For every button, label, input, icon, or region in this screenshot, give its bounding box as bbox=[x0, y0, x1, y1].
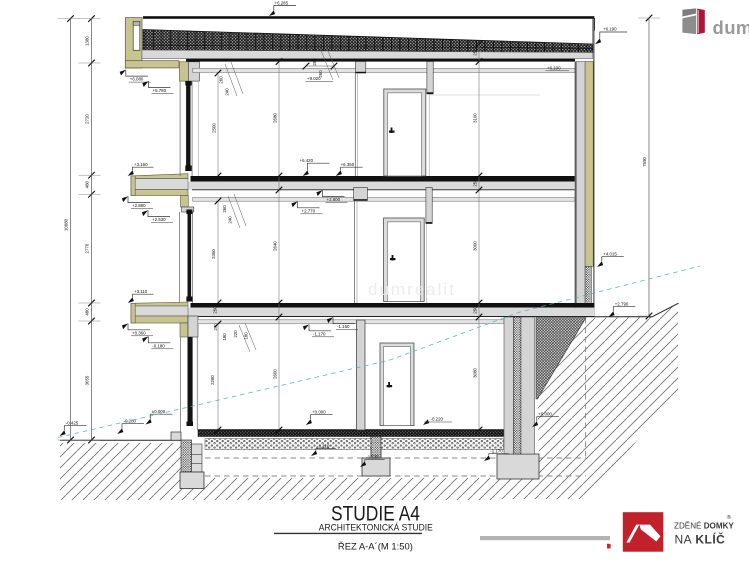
svg-text:250: 250 bbox=[472, 306, 477, 314]
svg-text:480: 480 bbox=[84, 180, 89, 188]
svg-text:2680: 2680 bbox=[272, 113, 277, 123]
svg-text:+6.100: +6.100 bbox=[547, 66, 561, 71]
svg-text:ARCHITEKTONICKÁ STUDIE: ARCHITEKTONICKÁ STUDIE bbox=[319, 523, 433, 533]
svg-text:±0.000: ±0.000 bbox=[152, 409, 166, 414]
svg-text:2500: 2500 bbox=[211, 123, 216, 133]
svg-text:180: 180 bbox=[222, 333, 227, 341]
svg-text:+0.000: +0.000 bbox=[312, 409, 326, 414]
svg-text:2640: 2640 bbox=[272, 241, 277, 251]
svg-text:-0.180: -0.180 bbox=[152, 343, 165, 348]
svg-text:+9.020: +9.020 bbox=[307, 76, 321, 81]
svg-text:+0.000: +0.000 bbox=[538, 411, 552, 416]
svg-text:+2.790: +2.790 bbox=[615, 301, 629, 306]
svg-text:NA KLÍČ: NA KLÍČ bbox=[675, 532, 726, 547]
svg-text:+6.190: +6.190 bbox=[603, 27, 617, 32]
svg-text:3100: 3100 bbox=[472, 113, 477, 123]
svg-text:+2.770: +2.770 bbox=[302, 208, 316, 213]
svg-text:250: 250 bbox=[472, 179, 477, 187]
svg-text:+3.110: +3.110 bbox=[134, 289, 148, 294]
svg-text:-0.425: -0.425 bbox=[66, 420, 79, 425]
svg-text:260: 260 bbox=[219, 76, 224, 84]
svg-text:250: 250 bbox=[472, 48, 477, 56]
svg-text:+0.360: +0.360 bbox=[132, 330, 146, 335]
svg-text:270: 270 bbox=[213, 323, 218, 331]
svg-text:+6.080: +6.080 bbox=[130, 77, 144, 82]
svg-text:2280: 2280 bbox=[210, 375, 215, 385]
svg-text:-1.530: -1.530 bbox=[366, 454, 379, 459]
svg-text:dumrealit: dumrealit bbox=[368, 280, 456, 299]
svg-text:-0.280: -0.280 bbox=[124, 418, 137, 423]
svg-text:250: 250 bbox=[312, 58, 317, 66]
svg-text:+4.015: +4.015 bbox=[603, 251, 617, 256]
svg-text:-1.160: -1.160 bbox=[337, 324, 350, 329]
svg-text:3000: 3000 bbox=[472, 241, 477, 251]
svg-text:+2.600: +2.600 bbox=[327, 197, 341, 202]
svg-text:250: 250 bbox=[212, 306, 217, 314]
svg-text:240: 240 bbox=[225, 88, 230, 96]
svg-text:ZDĚNÉ DOMKY: ZDĚNÉ DOMKY bbox=[674, 522, 734, 531]
svg-text:-0.220: -0.220 bbox=[431, 417, 444, 422]
svg-text:7590: 7590 bbox=[642, 157, 647, 167]
svg-text:480: 480 bbox=[84, 308, 89, 316]
svg-text:+6.285: +6.285 bbox=[275, 1, 289, 6]
svg-text:+2.880: +2.880 bbox=[132, 203, 146, 208]
svg-text:2600: 2600 bbox=[272, 369, 277, 379]
svg-text:1380: 1380 bbox=[84, 36, 89, 46]
svg-text:10680: 10680 bbox=[64, 218, 69, 231]
svg-text:260: 260 bbox=[222, 205, 227, 213]
svg-text:3080: 3080 bbox=[472, 368, 477, 378]
svg-text:2720: 2720 bbox=[84, 114, 89, 124]
svg-text:240: 240 bbox=[228, 216, 233, 224]
svg-text:+2.530: +2.530 bbox=[152, 217, 166, 222]
svg-text:+5.780: +5.780 bbox=[153, 88, 167, 93]
svg-text:+3.160: +3.160 bbox=[134, 162, 148, 167]
svg-text:220: 220 bbox=[233, 330, 238, 338]
svg-text:3055: 3055 bbox=[84, 375, 89, 385]
svg-text:180: 180 bbox=[244, 332, 249, 340]
svg-text:+6.420: +6.420 bbox=[300, 158, 314, 163]
svg-text:2360: 2360 bbox=[211, 249, 216, 259]
svg-text:2770: 2770 bbox=[84, 243, 89, 253]
svg-text:dumr: dumr bbox=[713, 17, 749, 38]
svg-text:®: ® bbox=[727, 514, 732, 521]
svg-text:-1.170: -1.170 bbox=[313, 331, 326, 336]
svg-text:ŘEZ A-A´(M 1:50): ŘEZ A-A´(M 1:50) bbox=[338, 541, 413, 551]
svg-text:-1.110: -1.110 bbox=[317, 443, 330, 448]
svg-text:-1.170: -1.170 bbox=[490, 448, 503, 453]
svg-text:+6.350: +6.350 bbox=[341, 162, 355, 167]
